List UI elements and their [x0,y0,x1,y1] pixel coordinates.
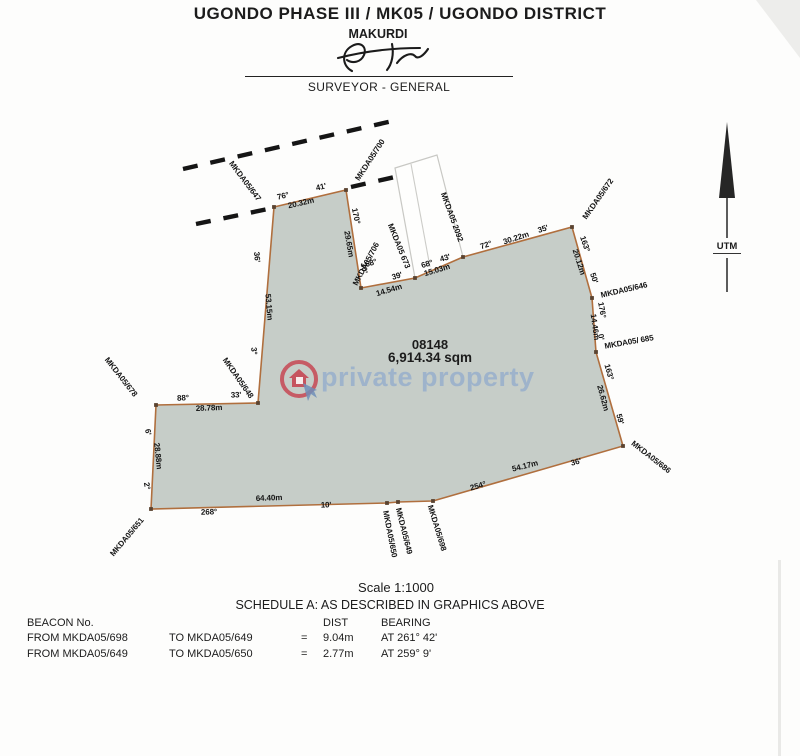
beacon-dot [461,255,465,259]
from-beacon: FROM MKDA05/649 [27,648,169,660]
equals-sign: = [301,632,323,644]
beacon-dot [154,403,158,407]
schedule-table: BEACON No. DIST BEARING FROM MKDA05/698 … [27,615,521,662]
edge-measurement-label: 28.78m [196,403,223,413]
schedule-heading: SCHEDULE A: AS DESCRIBED IN GRAPHICS ABO… [0,598,780,612]
edge-measurement-label: 268° [201,507,217,517]
col-dist: DIST [323,617,381,629]
bearing-value: AT 259° 9' [381,648,521,660]
schedule-header-row: BEACON No. DIST BEARING [27,615,521,631]
beacon-dot [359,286,363,290]
edge-measurement-label: 88° [177,393,189,402]
beacon-dot [590,296,594,300]
signature-icon [338,44,428,71]
to-beacon: TO MKDA05/650 [169,648,301,660]
edge-measurement-label: 3° [249,347,259,355]
beacon-dot [272,205,276,209]
beacon-dot [256,401,260,405]
scale-text: Scale 1:1000 [0,580,792,595]
watermark-text: private property [321,362,535,393]
beacon-dot [621,444,625,448]
beacon-dot [594,350,598,354]
edge-measurement-label: 36' [252,251,262,262]
bearing-value: AT 261° 42' [381,632,521,644]
beacon-dot [149,507,153,511]
beacon-dot [413,276,417,280]
beacon-dot [396,500,400,504]
edge-measurement-label: 64.40m [256,493,283,503]
schedule-row: FROM MKDA05/698 TO MKDA05/649 = 9.04m AT… [27,631,521,647]
scan-shade-corner [756,0,800,58]
beacon-dot [344,188,348,192]
beacon-dot [431,499,435,503]
equals-sign: = [301,648,323,660]
north-arrow-icon [719,122,735,292]
schedule-row: FROM MKDA05/649 TO MKDA05/650 = 2.77m AT… [27,646,521,662]
to-beacon: TO MKDA05/649 [169,632,301,644]
survey-plan-document: UGONDO PHASE III / MK05 / UGONDO DISTRIC… [0,0,800,756]
col-bearing: BEARING [381,617,521,629]
distance-value: 9.04m [323,632,381,644]
dashed-boundary-line [196,209,268,224]
from-beacon: FROM MKDA05/698 [27,632,169,644]
edge-measurement-label: 33' [231,390,242,399]
beacon-dot [570,225,574,229]
edge-measurement-label: 2° [142,482,152,491]
distance-value: 2.77m [323,648,381,660]
beacon-dot [385,501,389,505]
north-arrow-label: UTM [713,241,741,254]
col-beacon: BEACON No. [27,617,169,629]
edge-measurement-label: 10' [321,500,332,509]
